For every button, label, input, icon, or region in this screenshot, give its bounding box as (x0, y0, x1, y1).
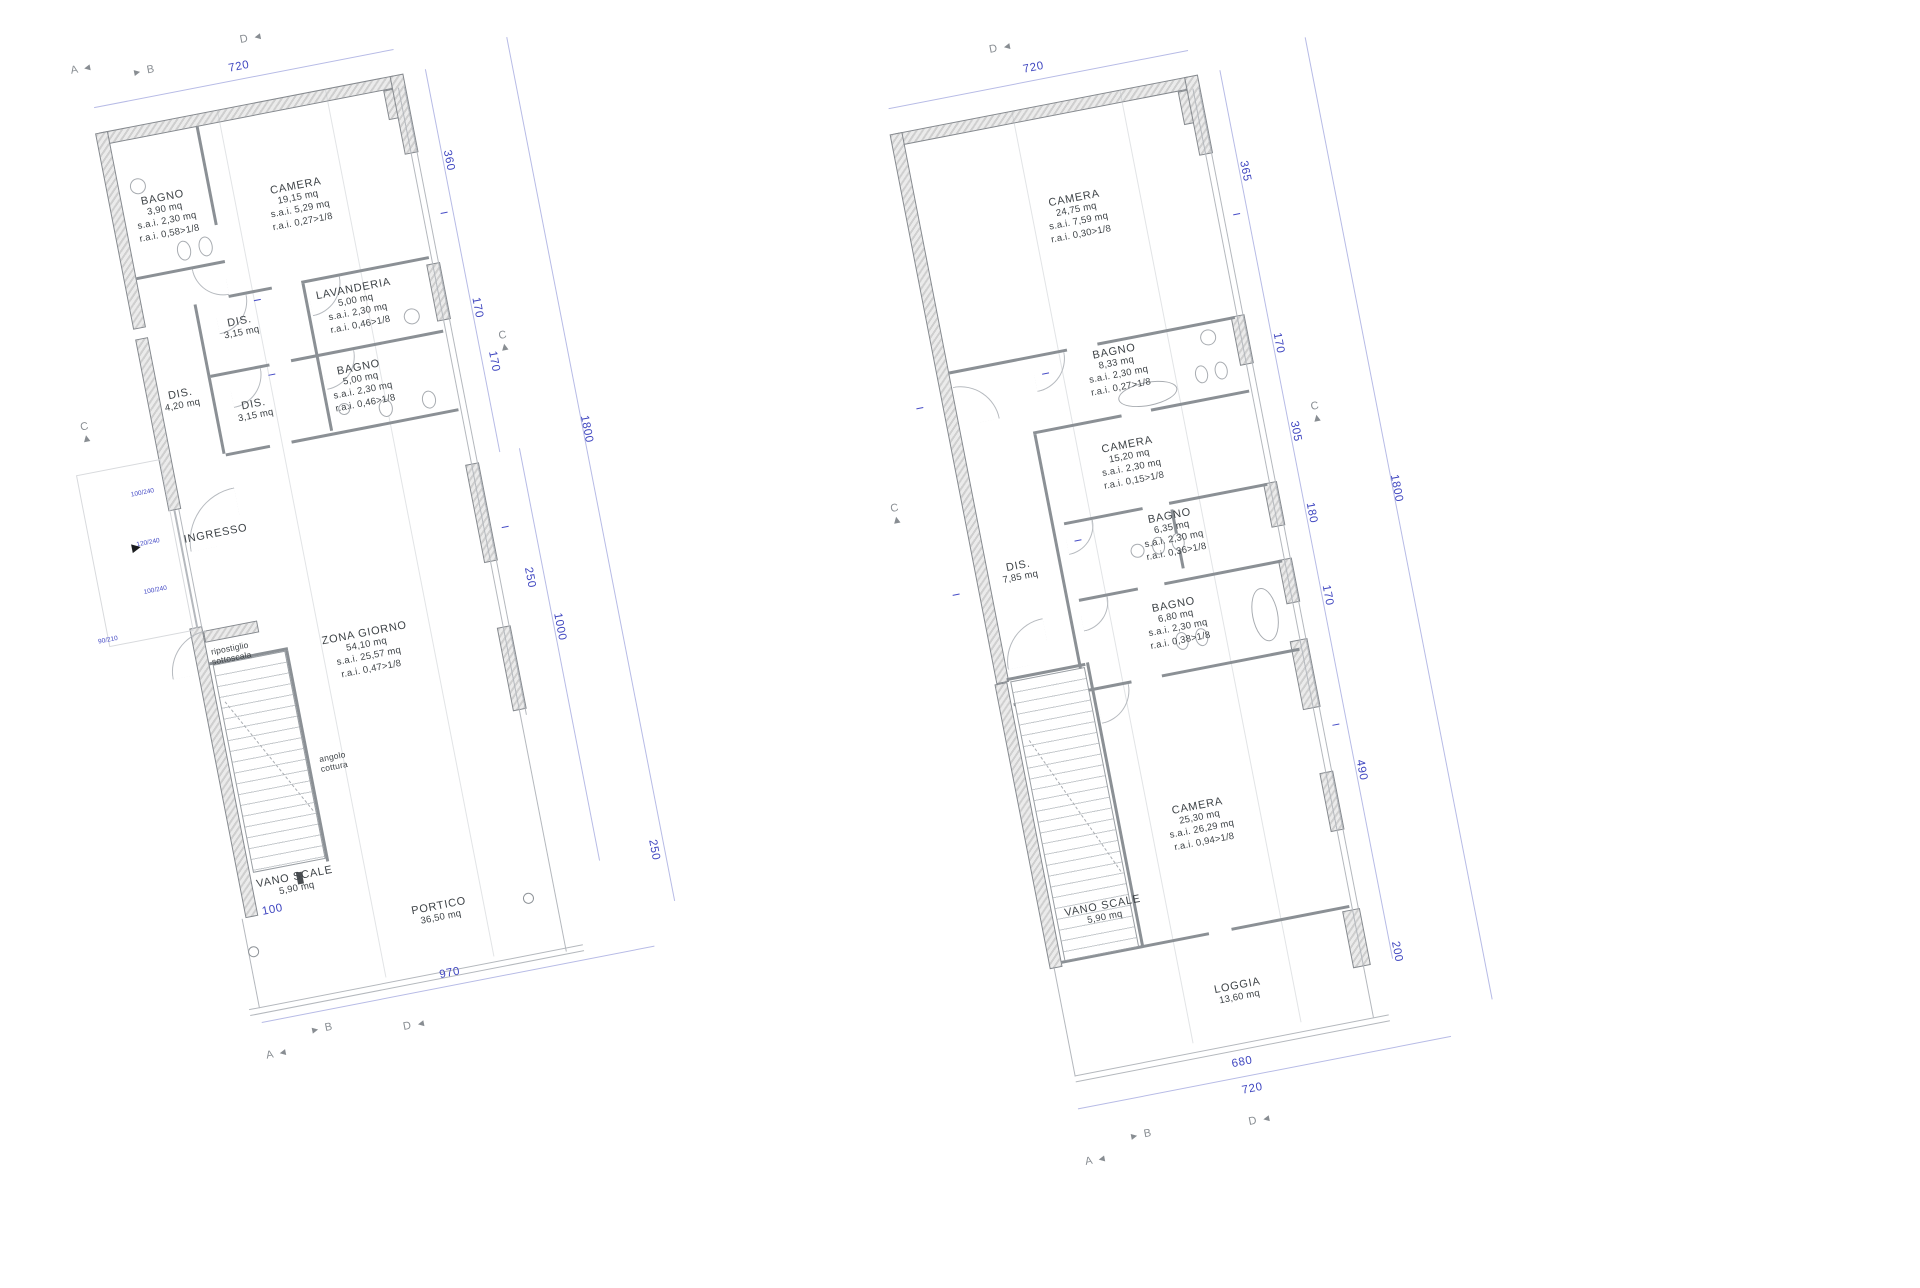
dimension-label: 100 (261, 902, 284, 918)
arrow-up-icon: ▲ (890, 513, 903, 527)
bidet-fixture (1213, 360, 1229, 380)
section-marker-d: D ◄ (1247, 1112, 1273, 1128)
dimension-label: 250 (646, 839, 662, 862)
partition-wall (226, 445, 271, 457)
arrow-right-icon: ► (309, 1024, 322, 1037)
portico-edge (520, 716, 567, 952)
bidet-fixture (420, 389, 437, 409)
section-marker-d: D ◄ (402, 1017, 428, 1033)
arrow-right-icon: ► (131, 66, 144, 79)
dimension-label: 170 (486, 350, 502, 373)
floor-plan-first: CAMERA 24,75 mq s.a.i. 7,59 mq r.a.i. 0,… (853, 16, 1416, 1164)
dimension-label: 360 (441, 149, 457, 172)
partition-wall (1162, 648, 1300, 678)
portico-edge (250, 950, 584, 1016)
partition-wall (1231, 905, 1349, 931)
partition-wall (1169, 483, 1268, 505)
room-label-bagno: BAGNO 6,35 mq s.a.i. 2,30 mq r.a.i. 0,36… (1139, 504, 1208, 564)
section-marker-a: A ◄ (1084, 1152, 1109, 1168)
entrance-arrow: ► (127, 538, 145, 558)
loggia-edge (1054, 968, 1076, 1076)
dimension-label: 1800 (578, 414, 595, 444)
door-swing (953, 379, 1000, 426)
section-marker-b: ► B (309, 1021, 334, 1037)
dimension-label: 970 (438, 965, 461, 981)
room-label-angolo-cottura: angolo cottura (318, 749, 349, 775)
dimension-label: 200 (1389, 940, 1405, 963)
opening-tick (441, 212, 448, 214)
arrow-left-icon: ◄ (81, 62, 94, 75)
dimension-line (1305, 37, 1493, 999)
opening-tick (953, 594, 960, 596)
dimension-label: 1000 (551, 612, 568, 642)
room-label-dis: DIS. 7,85 mq (1000, 557, 1040, 588)
projection-line (325, 89, 495, 957)
section-marker-d: D ◄ (239, 30, 265, 46)
room-label-loggia: LOGGIA 13,60 mq (1213, 975, 1264, 1008)
dimension-label: 250 (522, 566, 538, 589)
section-marker-c: C ▲ (1308, 399, 1323, 425)
sink-fixture (129, 177, 148, 196)
room-label-camera: CAMERA 15,20 mq s.a.i. 2,30 mq r.a.i. 0,… (1096, 433, 1165, 493)
section-marker-a: A ◄ (70, 61, 95, 77)
dimension-line (262, 946, 655, 1023)
door-swing (165, 630, 214, 679)
room-label-camera: CAMERA 24,75 mq s.a.i. 7,59 mq r.a.i. 0,… (1043, 187, 1112, 247)
room-label-camera: CAMERA 25,30 mq s.a.i. 26,29 mq r.a.i. 0… (1164, 794, 1237, 855)
dimension-line (425, 69, 500, 452)
room-label-zona-giorno: ZONA GIORNO 54,10 mq s.a.i. 25,57 mq r.a… (321, 619, 415, 684)
arrow-left-icon: ◄ (1096, 1153, 1109, 1166)
opening-tick (268, 373, 275, 375)
portico-edge (249, 944, 583, 1010)
opening-tick (1233, 213, 1240, 215)
arrow-up-icon: ▲ (1311, 411, 1324, 425)
dimension-line (1078, 1036, 1451, 1109)
dimension-label: 170 (1320, 584, 1336, 607)
dimension-label: 180 (1304, 501, 1320, 524)
section-marker-c: C ▲ (496, 328, 511, 354)
window-line (1198, 87, 1358, 908)
room-label-camera: CAMERA 19,15 mq s.a.i. 5,29 mq r.a.i. 0,… (265, 174, 334, 234)
arrow-left-icon: ◄ (415, 1018, 428, 1031)
room-label-bagno: BAGNO 3,90 mq s.a.i. 2,30 mq r.a.i. 0,58… (132, 186, 201, 246)
section-marker-c: C ▲ (78, 420, 93, 446)
dimension-label: 720 (1022, 60, 1045, 76)
section-marker-d: D ◄ (988, 39, 1014, 55)
dimension-label: 680 (1231, 1054, 1254, 1070)
dimension-line (94, 49, 394, 108)
arrow-left-icon: ◄ (252, 31, 265, 44)
opening-tick (502, 526, 509, 528)
dimension-label: 720 (1241, 1081, 1264, 1097)
bidet-fixture (197, 235, 215, 257)
dimension-label: 305 (1288, 420, 1304, 443)
section-marker-b: ► B (131, 63, 156, 79)
arrow-left-icon: ◄ (1001, 40, 1014, 53)
dimension-label: 365 (1237, 160, 1253, 183)
section-marker-b: ► B (1128, 1127, 1153, 1143)
partition-wall (196, 127, 218, 226)
arrow-left-icon: ◄ (1260, 1113, 1273, 1126)
wc-fixture (1193, 364, 1209, 384)
room-label-portico: PORTICO 36,50 mq (410, 895, 469, 929)
room-label-dis: DIS. 4,20 mq (162, 385, 202, 416)
door-swing (192, 263, 230, 301)
washer-fixture (402, 307, 421, 326)
loggia-edge (1076, 1020, 1390, 1082)
window-line (398, 88, 521, 716)
room-label-dis: DIS. 3,15 mq (235, 395, 275, 426)
wc-fixture (175, 239, 193, 261)
sink-fixture (1199, 328, 1218, 347)
partition-wall (1033, 414, 1122, 434)
drawing-canvas: { "palette": { "dim_blue": "#3f46c0", "w… (0, 0, 1920, 1288)
room-label-dis: DIS. 3,15 mq (221, 312, 261, 343)
wall (893, 76, 1190, 146)
window-line (1192, 89, 1352, 910)
door-swing (999, 618, 1051, 670)
dimension-label: 1800 (1388, 473, 1405, 503)
portico-edge (242, 919, 260, 1009)
opening-tick (916, 407, 923, 409)
dimension-label: 490 (1354, 759, 1370, 782)
partition-wall (291, 408, 458, 443)
arrow-right-icon: ► (1128, 1130, 1141, 1143)
dimension-label: 170 (469, 296, 485, 319)
wall (203, 621, 259, 643)
dimension-label: 170 (1271, 332, 1287, 355)
dimension-line (519, 448, 600, 860)
section-marker-c: C ▲ (888, 501, 903, 527)
section-marker-a: A ◄ (265, 1046, 290, 1062)
opening-tick (254, 299, 261, 301)
bathtub-fixture (1247, 586, 1283, 644)
wall (99, 75, 396, 145)
opening-tick (1332, 723, 1339, 725)
dimension-line (889, 50, 1189, 109)
dimension-label: 720 (228, 59, 251, 75)
loggia-pillar (1342, 908, 1371, 968)
portico-column (522, 892, 535, 905)
floor-plan-ground: BAGNO 3,90 mq s.a.i. 2,30 mq r.a.i. 0,58… (59, 15, 601, 1056)
arrow-up-icon: ▲ (80, 432, 93, 446)
arrow-up-icon: ▲ (498, 340, 511, 354)
arrow-left-icon: ◄ (277, 1047, 290, 1060)
